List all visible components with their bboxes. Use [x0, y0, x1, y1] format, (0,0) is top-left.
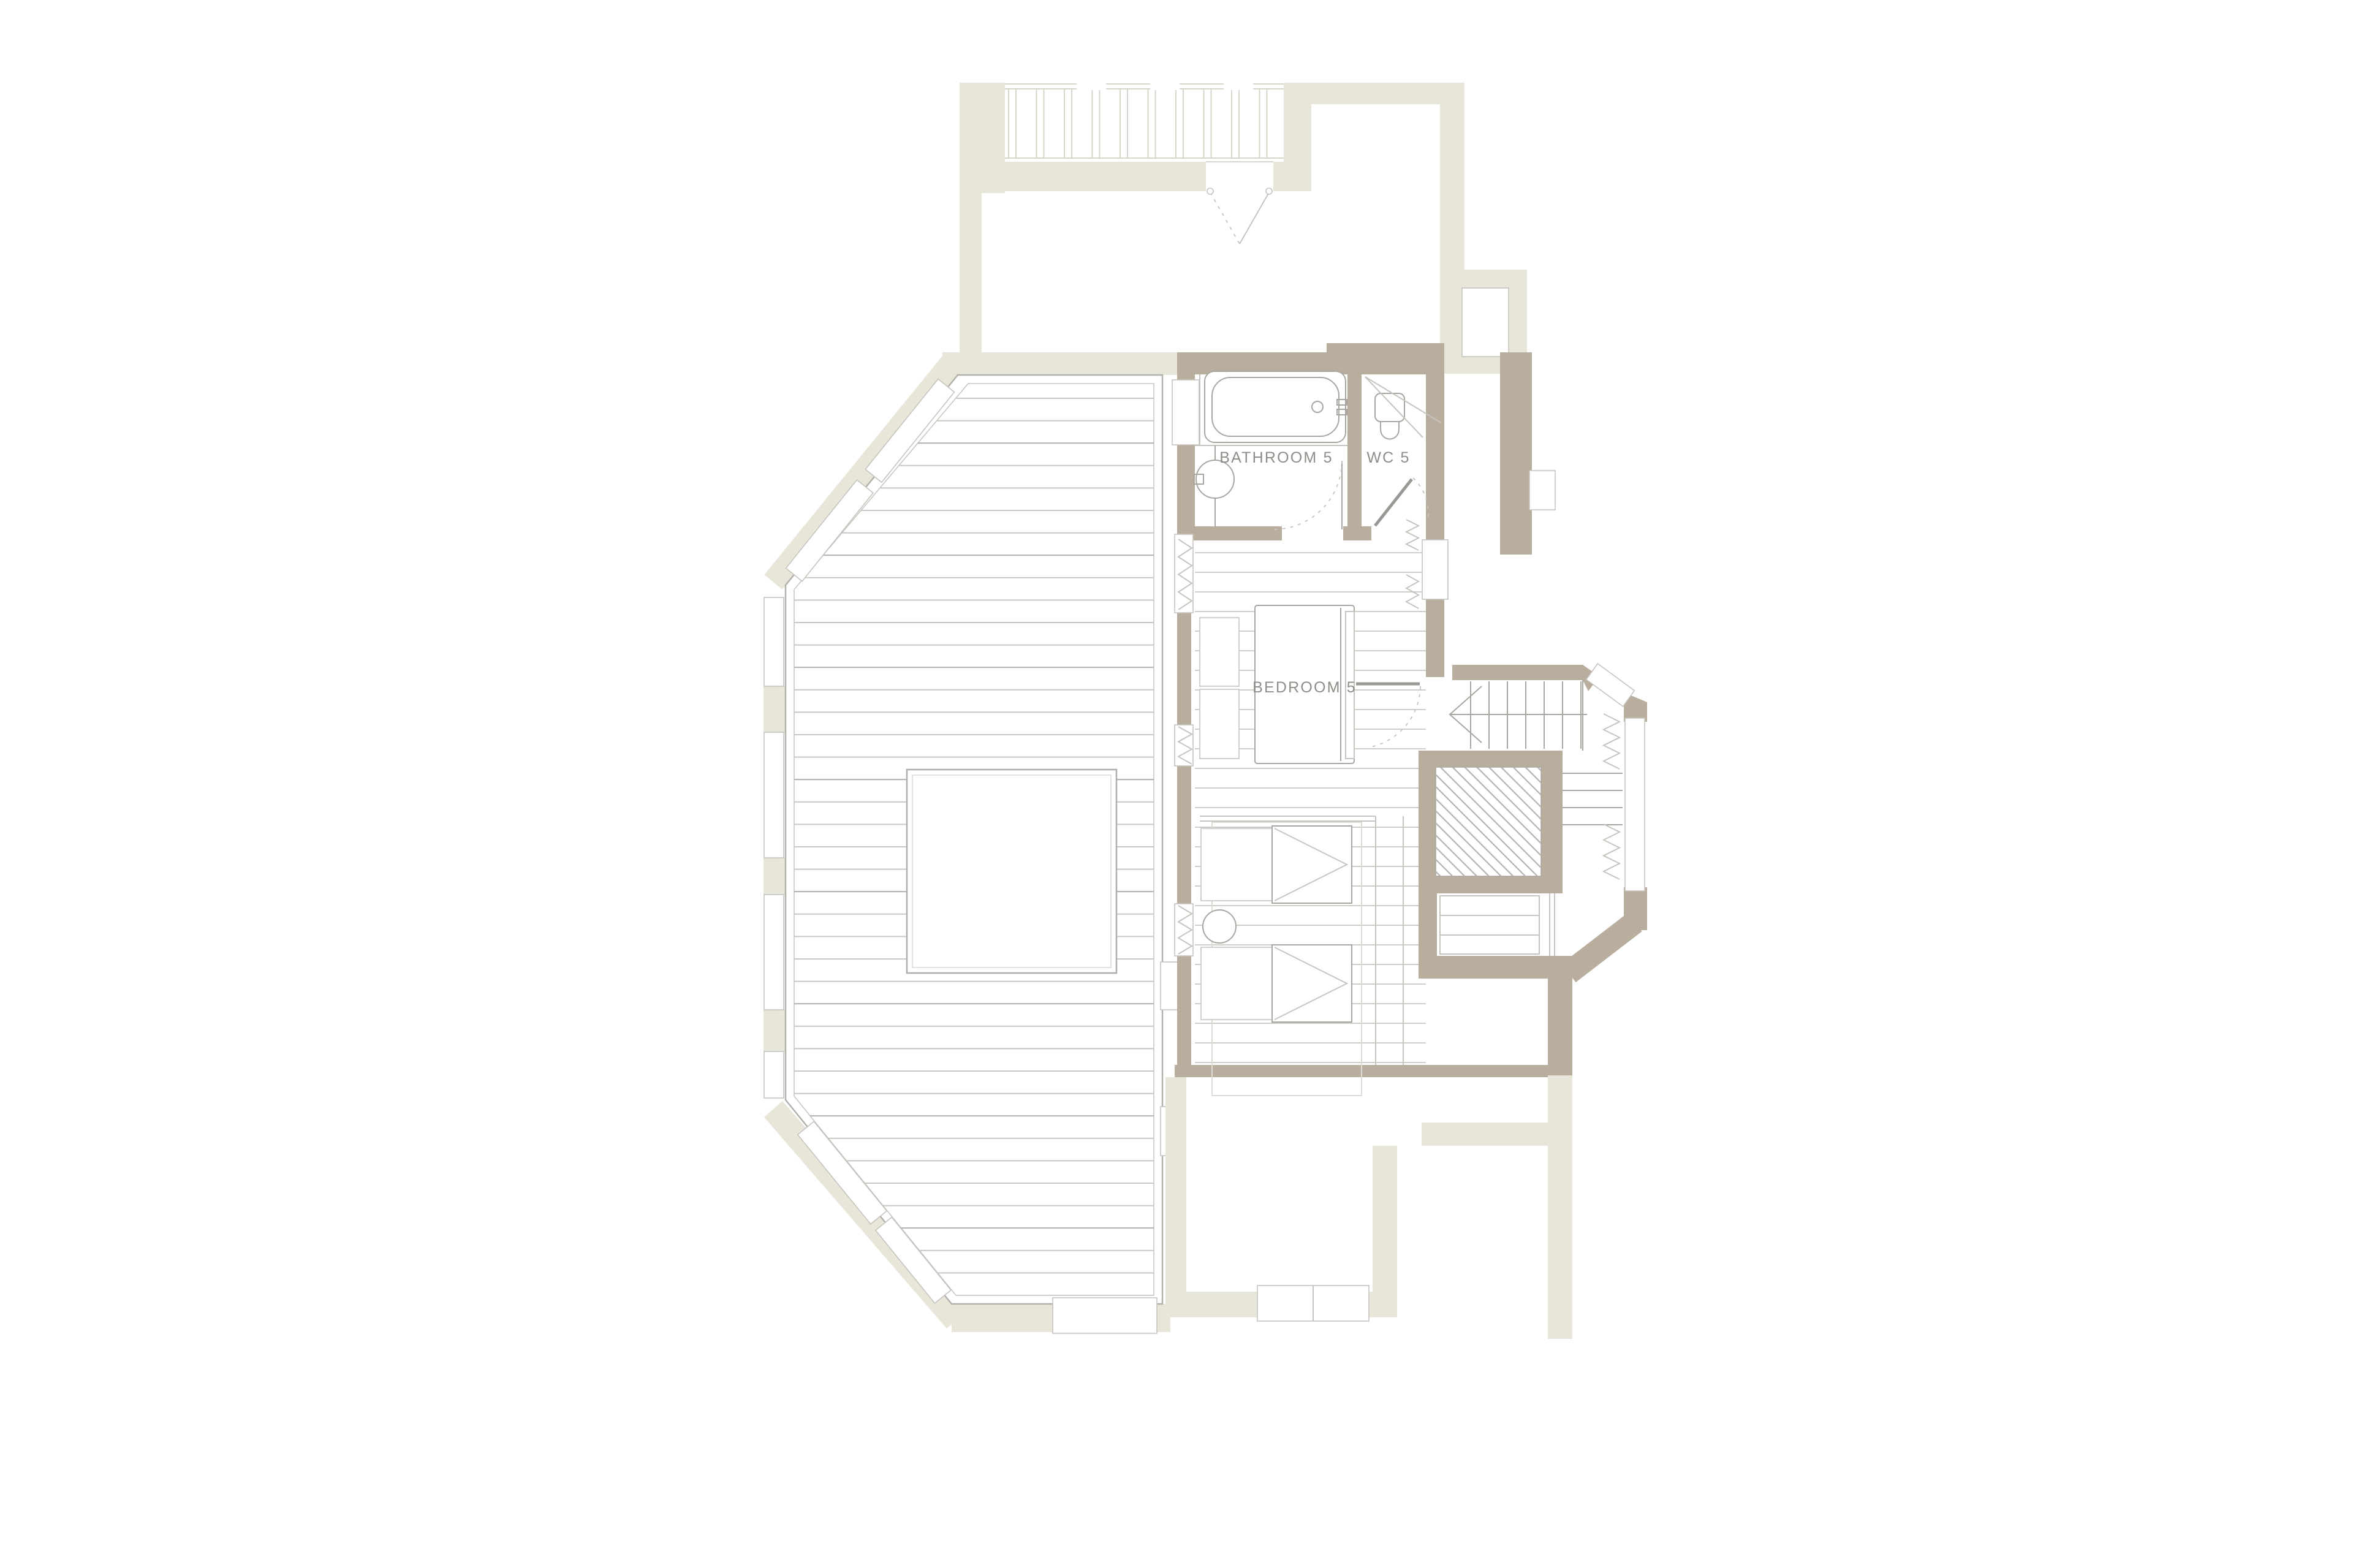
toilet — [1375, 393, 1404, 439]
wall-wc-south — [1362, 526, 1371, 540]
wall-right-lower — [1426, 599, 1444, 677]
lower-level-structure — [960, 80, 1527, 375]
wall-wc-south — [1426, 526, 1444, 540]
wardrobe — [1175, 534, 1193, 613]
bay-window-east — [1625, 718, 1645, 891]
ghost-wall — [960, 83, 1005, 193]
corridor-window — [1422, 540, 1448, 599]
wall-void-south — [1419, 956, 1572, 979]
ghost-wall — [1422, 1123, 1548, 1146]
floor-plan-canvas: BATHROOM 5 WC 5 BEDROOM 5 — [0, 0, 2353, 1568]
wall-right-upper — [1426, 343, 1444, 540]
bathroom-window — [1172, 380, 1199, 445]
ghost-door — [1206, 161, 1273, 244]
void-hatch — [1436, 767, 1541, 876]
wall-bedroom-left — [1177, 766, 1191, 904]
lower-level-structure-bottom — [1165, 1075, 1572, 1339]
bathroom-door — [1273, 461, 1342, 529]
radiator-icon — [1406, 520, 1419, 550]
wall-bay-se-diagonal — [1569, 922, 1635, 973]
wall-bedroom-left — [1177, 956, 1191, 1065]
bay-radiators — [1604, 714, 1620, 879]
wall-bay-connector — [1548, 979, 1572, 1075]
chimney-block — [1500, 352, 1532, 555]
bathtub — [1205, 371, 1347, 442]
bedroom-label: BEDROOM 5 — [1252, 679, 1357, 696]
window — [1053, 1298, 1157, 1333]
ghost-stub — [763, 1010, 786, 1051]
ghost-wall — [1284, 83, 1311, 191]
ghost-wall — [1165, 1077, 1186, 1317]
balcony-slats — [1005, 80, 1284, 158]
window — [764, 732, 784, 858]
ghost-stub — [763, 686, 786, 732]
wall-stairwell-north — [1452, 665, 1583, 680]
void-cupboard — [1440, 893, 1555, 956]
wc-label: WC 5 — [1366, 449, 1410, 466]
skylight — [907, 770, 1116, 973]
wall-bedroom-south — [1175, 1065, 1572, 1077]
stair-winders — [1563, 773, 1623, 825]
window — [764, 597, 784, 686]
bay-window-ne — [1586, 664, 1635, 706]
bedside-cabinet — [1200, 618, 1239, 686]
ghost-wall — [960, 191, 982, 375]
void-shaft — [1419, 751, 1563, 893]
window — [764, 895, 784, 1010]
wall-bathroom-south — [1343, 526, 1362, 540]
bedside-cabinet — [1200, 689, 1239, 759]
bedroom-door — [1356, 684, 1420, 747]
wall-bedroom-left — [1177, 613, 1191, 725]
bathroom-label: BATHROOM 5 — [1219, 449, 1333, 466]
wc-door — [1375, 478, 1428, 526]
window — [764, 1051, 784, 1098]
ghost-wall — [1548, 1075, 1572, 1339]
chimney-window — [1529, 471, 1555, 510]
wall-bathroom-wc-divider — [1347, 374, 1362, 531]
slat-gap — [1077, 80, 1106, 90]
floor-plan-drawing: BATHROOM 5 WC 5 BEDROOM 5 — [0, 0, 2353, 1568]
wardrobe — [1175, 904, 1193, 956]
ghost-band-top — [942, 352, 1177, 375]
ghost-stub — [763, 858, 786, 895]
twin-bed-1 — [1201, 826, 1352, 903]
slat-gap — [1150, 80, 1180, 90]
slat-gap — [1224, 80, 1253, 90]
twin-bed-2 — [1201, 945, 1352, 1022]
radiator-icon — [1604, 714, 1620, 769]
ghost-wall — [1373, 1146, 1397, 1292]
side-table — [1203, 910, 1236, 943]
radiator-icon — [1604, 824, 1620, 879]
